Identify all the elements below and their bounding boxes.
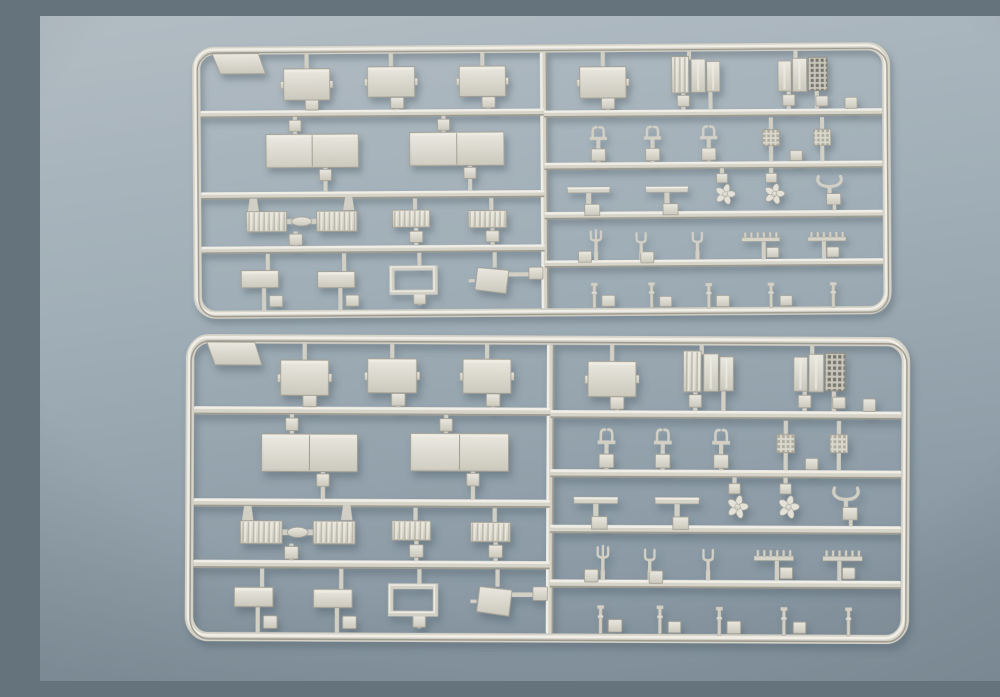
panel-face (588, 361, 636, 396)
part-panel (577, 67, 629, 99)
comb-tooth (816, 232, 818, 238)
part-corrugated-panel (392, 521, 431, 540)
part-slat-panel (809, 354, 824, 392)
sprue-gate-block (863, 399, 876, 412)
sprue-stem (810, 346, 814, 355)
grid-face (830, 435, 848, 453)
sprue-stem (708, 92, 712, 110)
grid-face (814, 129, 831, 145)
sprue-stem (610, 345, 614, 362)
sprue-gate-block (790, 150, 802, 160)
part-corrugated-panel (392, 210, 429, 227)
sprue-gate-block (486, 231, 499, 242)
sprue-stem (260, 569, 264, 588)
comb-tooth (763, 550, 766, 556)
panel-face (368, 359, 417, 393)
part-grid-plate (762, 130, 779, 146)
sprue-gate-block (305, 99, 318, 110)
panel-highlight (581, 68, 625, 70)
sprue-gate-block (317, 474, 330, 487)
t-top-highlight (655, 498, 699, 500)
sprue-stem (769, 117, 773, 129)
sprue-stem (339, 569, 343, 589)
stanchion-cap (597, 605, 604, 608)
part-panel (318, 271, 355, 287)
sprue-stem (721, 391, 725, 411)
part-double-panel (266, 134, 359, 168)
sprue-gate-block (319, 169, 331, 180)
trap-stub (470, 600, 476, 603)
stanchion-ring (831, 291, 836, 293)
comb-tooth (851, 550, 854, 556)
sprue-gate-block (727, 621, 741, 634)
sprue-stem (820, 117, 824, 129)
sprue-stem (390, 344, 394, 359)
comb-tooth (823, 232, 825, 238)
corrugation (241, 522, 281, 543)
sprue-gate-block (780, 484, 792, 494)
sprue-gate-block (798, 395, 811, 408)
sprue-stem (601, 570, 605, 580)
trap-stub (469, 279, 475, 282)
panel-face (367, 67, 414, 98)
panel-highlight (242, 271, 277, 273)
sprue-rail-horizontal (550, 410, 901, 420)
stanchion-ring (768, 292, 773, 294)
panel-face (281, 360, 329, 395)
sprue-gate-block (440, 419, 453, 432)
stanchion-cap (716, 607, 723, 610)
comb-tooth (763, 232, 765, 238)
sprue-gate-block (660, 296, 672, 306)
davit-post (650, 139, 654, 144)
grating-face (808, 57, 827, 90)
sprue-gate-block (270, 296, 283, 307)
sprue-stem (820, 145, 824, 161)
sprue-gate-block (533, 587, 548, 601)
sprue-stem (480, 53, 484, 67)
stanchion-cap (705, 283, 711, 286)
trident-prong (595, 229, 597, 240)
sprue-stem (769, 146, 773, 162)
sprue-gate-block (585, 569, 599, 582)
corrugation (393, 211, 428, 226)
sprue-rail-horizontal (194, 406, 550, 416)
photo-model-kit-sprues (40, 16, 1000, 681)
sprue-gate-block (529, 267, 543, 279)
sprue-gate-block (578, 251, 591, 262)
t-base (592, 517, 608, 530)
t-top-highlight (567, 187, 609, 189)
sprue-rail-horizontal (550, 469, 901, 479)
sprue-gate-block (646, 148, 660, 160)
propeller-hub (772, 191, 777, 196)
sprue-stem (389, 54, 393, 67)
sprue-gate-block (467, 473, 480, 486)
trident-post (594, 241, 597, 252)
sprue-stem (338, 288, 342, 310)
sprue-gate-block (464, 167, 476, 178)
part-panel (313, 589, 352, 607)
slat-highlight (783, 63, 785, 89)
davit-post (604, 444, 608, 450)
link-hub (292, 217, 312, 226)
part-panel (281, 69, 333, 101)
comb-tooth (782, 550, 785, 556)
part-slat-panel (794, 357, 808, 391)
sprue-gate-block (489, 545, 503, 558)
panel-sheen (264, 436, 309, 469)
sprue-gate-block (286, 418, 299, 431)
comb-bar (742, 237, 780, 241)
comb-tooth (832, 550, 835, 556)
bracket-post (844, 499, 848, 507)
propeller-hub (723, 192, 728, 197)
sprue-stem (493, 508, 497, 523)
sprue-gate-block (816, 96, 828, 106)
stanchion-post (658, 608, 661, 634)
sprue-stem (793, 51, 797, 59)
sprue-stem (305, 54, 309, 69)
corrugation (673, 58, 688, 92)
stanchion-post (782, 609, 785, 635)
stanchion-post (847, 610, 850, 636)
sprue-stem (485, 344, 489, 360)
slat-highlight (799, 359, 801, 389)
t-top-highlight (574, 497, 618, 499)
fork-post (696, 242, 699, 253)
sprue-corner-tab (207, 342, 262, 365)
sprue-gate-block (729, 484, 741, 494)
comb-tooth (769, 550, 772, 556)
slat-highlight (697, 61, 699, 90)
slat-highlight (712, 63, 714, 89)
stanchion-post (707, 285, 710, 308)
panel-sheen (413, 436, 459, 469)
stanchion-ring (717, 617, 722, 620)
part-slat-panel (792, 58, 806, 91)
t-base (673, 517, 689, 530)
stanchion-ring (781, 617, 786, 620)
panel-highlight (369, 360, 416, 362)
comb-tooth (835, 232, 837, 238)
stanchion-cap (648, 282, 654, 285)
grid-face (762, 130, 779, 146)
part-double-panel (410, 433, 508, 471)
fork-post (648, 560, 651, 573)
sprue-stem (489, 198, 493, 211)
comb-tooth (744, 232, 746, 238)
part-grating-panel (825, 353, 845, 391)
stanchion-post (593, 285, 596, 308)
stanchion-cap (657, 606, 664, 609)
sprue-corner-tab (212, 54, 265, 75)
part-corrugated-panel (246, 211, 286, 231)
sprue-gate-block (668, 621, 681, 632)
comb-tooth (858, 550, 861, 556)
davit-post (719, 444, 723, 450)
grating-face (825, 353, 845, 391)
part-corrugated-panel (468, 210, 506, 227)
part-panel (234, 587, 273, 606)
davit-post (596, 140, 600, 145)
sprue-stem (493, 252, 497, 267)
panel-highlight (589, 362, 635, 364)
grid-face (777, 434, 795, 452)
part-corrugated-panel (671, 57, 688, 93)
sprue-gate-block (591, 149, 605, 161)
sprue-stem (762, 241, 766, 259)
sprue-gate-block (303, 394, 317, 407)
sprue-gate-block (702, 148, 716, 160)
sprue-gate-block (610, 397, 624, 410)
davit-post (707, 139, 711, 144)
sprue-gate-block (842, 568, 855, 579)
comb-tooth (769, 232, 771, 238)
comb-tooth (776, 550, 779, 556)
part-panel (277, 360, 331, 395)
sprue-gate-block (289, 120, 301, 131)
stanchion-cap (591, 283, 597, 286)
panel-highlight (464, 360, 510, 362)
sprue-stem (495, 570, 499, 587)
sprue-stem (837, 453, 841, 471)
sprue-stem (266, 254, 270, 271)
part-panel (241, 270, 278, 287)
stanchion-ring (649, 292, 654, 294)
part-corrugated-panel (313, 521, 355, 544)
davit-post (661, 444, 665, 450)
sprue-stem (256, 607, 260, 632)
comb-tooth (841, 232, 843, 238)
part-corrugated-panel (317, 211, 357, 231)
sprue-rail-horizontal (550, 579, 901, 589)
comb-tooth (838, 550, 841, 556)
part-slat-panel (720, 357, 734, 391)
t-base (663, 204, 678, 215)
sprue-gate-block (414, 294, 426, 304)
bracket-post (828, 187, 832, 194)
sprue-gate-block (780, 296, 792, 306)
part-panel (460, 359, 514, 393)
panel-sheen (411, 134, 455, 164)
comb-bar (808, 237, 846, 241)
sprue-stem (594, 252, 598, 261)
sprue-gate-block (263, 616, 277, 629)
panel-highlight (368, 68, 413, 70)
trap-face (477, 587, 513, 617)
stanchion-ring (846, 618, 851, 621)
comb-bar (823, 556, 863, 561)
sprue-stem (413, 198, 417, 210)
part-panel (364, 359, 419, 393)
sprue-gate-block (285, 546, 299, 559)
part-slat-panel (778, 61, 791, 91)
sprue-stem (342, 253, 346, 271)
fork-post (706, 560, 709, 573)
corrugation (247, 213, 285, 231)
sprue-gate-block (649, 571, 663, 584)
sprue-stem (303, 344, 307, 361)
panel-highlight (235, 588, 271, 590)
comb-bar (754, 556, 794, 561)
panel-highlight (460, 67, 504, 69)
stanchion-post (832, 284, 835, 307)
sprue-stem (837, 561, 841, 581)
sprue-gate-block (655, 454, 670, 468)
sprue-stem (601, 52, 605, 67)
sprue-gate-block (486, 394, 500, 407)
panel-face (459, 66, 505, 97)
stanchion-cap (768, 283, 774, 286)
panel-face (284, 69, 330, 101)
corrugation (318, 212, 356, 230)
t-top-highlight (646, 187, 688, 189)
part-panel (585, 361, 639, 396)
sprue-gate-block (410, 545, 424, 558)
link-hub (287, 527, 308, 537)
propeller-hub (786, 504, 791, 510)
sprue-gate-block (346, 295, 359, 306)
stanchion-cap (845, 607, 852, 610)
sprue-gate-block (845, 97, 857, 108)
trident-prong (602, 545, 604, 558)
corrugation (314, 522, 354, 543)
part-corrugated-panel (240, 521, 282, 544)
sprue-gate-block (289, 234, 302, 245)
sprue-gate-block (413, 616, 426, 627)
sprue-gate-block (599, 454, 614, 468)
panel-sheen (268, 136, 311, 166)
sprue-gate-block (391, 97, 404, 108)
part-panel (456, 66, 508, 97)
part-panel (364, 67, 417, 98)
trap-face (475, 267, 509, 293)
sprue-gate-block (827, 247, 839, 257)
part-slat-panel (691, 59, 705, 92)
sprue-stem (784, 421, 788, 435)
sprue-gate-block (783, 95, 795, 106)
sprue-gate-block (677, 95, 689, 106)
corrugation (393, 522, 430, 539)
sprue-gate-block (641, 252, 654, 263)
sprue-gate-block (780, 567, 793, 578)
stanchion-post (599, 608, 602, 634)
sprue-gate-block (391, 393, 405, 406)
panel-face (463, 359, 511, 393)
comb-tooth (775, 232, 777, 238)
fork-post (640, 242, 643, 253)
sprue-stem (784, 453, 788, 471)
sprue-gate-block (793, 622, 806, 633)
part-grid-plate (830, 435, 848, 453)
sprue-gate-block (767, 247, 779, 257)
sprue-gate-block (410, 231, 423, 242)
part-grid-plate (777, 434, 795, 452)
t-base (585, 204, 600, 215)
comb-tooth (757, 550, 760, 556)
panel-highlight (285, 70, 329, 72)
stanchion-ring (592, 292, 597, 294)
stanchion-post (769, 285, 772, 308)
corrugation (472, 523, 510, 540)
panel-highlight (282, 361, 328, 363)
stanchion-ring (657, 616, 662, 619)
comb-tooth (829, 232, 831, 238)
sprue-gate-block (608, 620, 622, 633)
propeller-hub (735, 504, 740, 510)
sprue-gate-block (716, 296, 729, 307)
panel-face (580, 67, 626, 99)
stanchion-cap (830, 282, 836, 285)
part-slat-panel (707, 61, 720, 91)
panel-highlight (315, 590, 351, 592)
slat-highlight (725, 359, 727, 389)
comb-tooth (756, 232, 758, 238)
trident-post (601, 558, 604, 571)
bracket-base (827, 194, 841, 205)
comb-tooth (825, 550, 828, 556)
slat-highlight (815, 357, 817, 390)
panel-highlight (319, 272, 354, 274)
corrugation (684, 352, 700, 391)
sprue-gate-block (602, 295, 615, 306)
stanchion-post (718, 609, 721, 635)
sprue-stem (822, 241, 826, 259)
sprue-stem (837, 421, 841, 435)
comb-tooth (789, 550, 792, 556)
sprue-stem (775, 561, 779, 581)
corrugation (469, 211, 505, 226)
sprue-photo-canvas (40, 16, 1000, 681)
part-grid-plate (814, 129, 831, 145)
part-slat-panel (704, 354, 719, 392)
bracket-stem (833, 205, 837, 211)
sprue-gate-block (766, 173, 777, 182)
sprue-gate-block (689, 395, 702, 408)
sprue-gate-block (716, 174, 727, 183)
stanchion-cap (781, 607, 788, 610)
sprue-gate-block (343, 616, 357, 629)
comb-tooth (750, 232, 752, 238)
part-corrugated-panel (683, 351, 701, 392)
stanchion-ring (706, 292, 711, 294)
part-double-panel (409, 132, 504, 166)
part-grating-panel (808, 57, 827, 90)
sprue-stem (262, 288, 266, 310)
bracket-base (843, 507, 858, 520)
sprue-gate-block (601, 98, 614, 109)
sprue-gate-block (437, 119, 449, 130)
sprue-gate-block (482, 97, 495, 108)
comb-tooth (845, 550, 848, 556)
part-corrugated-panel (471, 522, 511, 542)
bracket-stem (849, 520, 853, 527)
sprue-gate-block (714, 455, 729, 469)
slat-highlight (798, 60, 800, 89)
sprue-stem (335, 608, 339, 633)
sprue-stem (413, 508, 417, 522)
stanchion-post (650, 284, 653, 307)
slat-highlight (710, 356, 712, 389)
stanchion-ring (598, 616, 603, 619)
comb-tooth (810, 232, 812, 238)
sprue-gate-block (833, 397, 846, 408)
part-double-panel (261, 434, 357, 472)
sprue-gate-block (805, 458, 818, 469)
